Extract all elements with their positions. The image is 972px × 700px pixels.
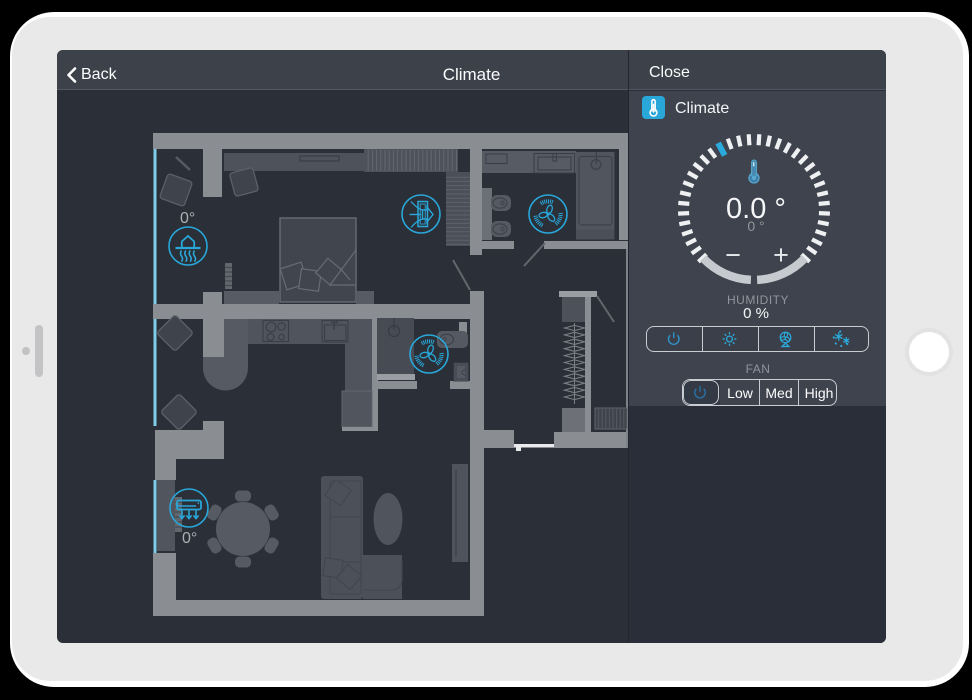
svg-text:0°: 0°	[182, 530, 197, 547]
svg-text:0°: 0°	[180, 210, 195, 227]
